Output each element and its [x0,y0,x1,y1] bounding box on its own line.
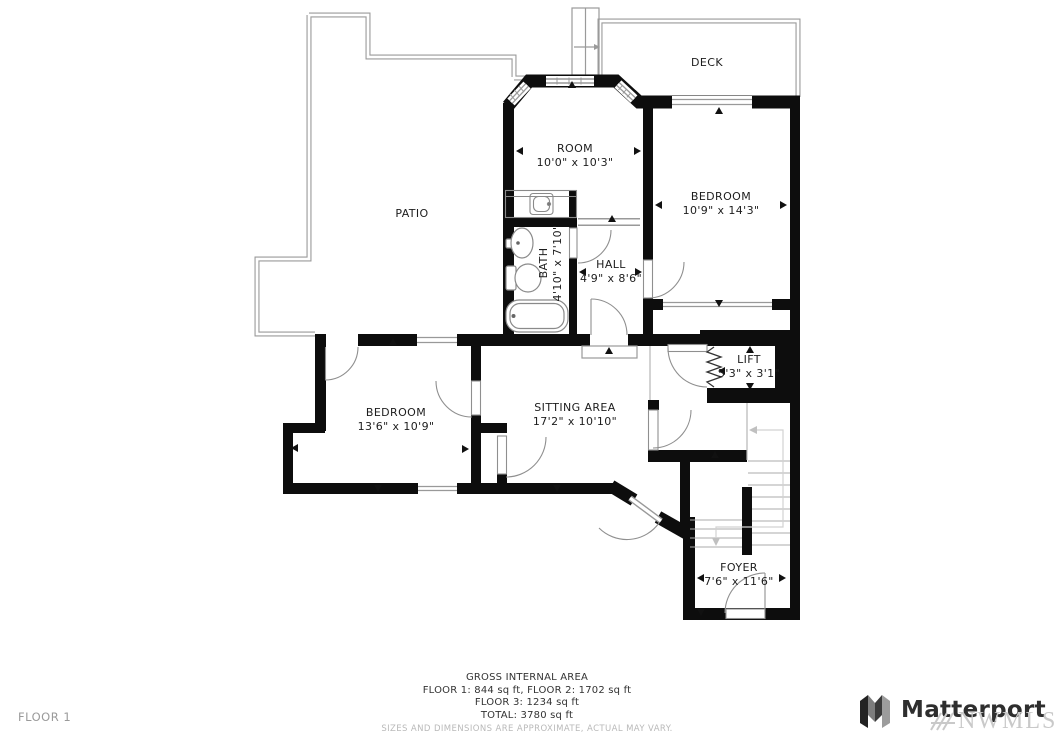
area-summary-title: GROSS INTERNAL AREA [0,672,1054,685]
room-dims: 10'0" x 10'3" [537,156,614,170]
room-label-bedroom-upper: BEDROOM 10'9" x 14'3" [683,190,760,218]
room-name: FOYER [704,561,773,575]
room-label-deck: DECK [691,56,723,70]
vanity-counter [506,191,577,218]
room-name: BEDROOM [683,190,760,204]
room-name: DECK [691,56,723,70]
room-label-hall: HALL 4'9" x 8'6" [580,258,642,286]
room-label-lift: LIFT 5'3" x 3'1" [718,353,780,381]
nwmls-watermark-icon [929,710,957,732]
room-name: BATH [537,225,551,302]
room-label-sitting-area: SITTING AREA 17'2" x 10'10" [533,401,617,429]
room-label-bedroom-lower: BEDROOM 13'6" x 10'9" [358,406,435,434]
nwmls-watermark-text: NWMLS [958,708,1054,734]
room-label-bath: BATH 4'10" x 7'10" [537,225,565,302]
room-name: HALL [580,258,642,272]
room-dims: 4'10" x 7'10" [551,225,565,302]
deck-steps [572,8,599,75]
room-dims: 10'9" x 14'3" [683,204,760,218]
toilet [506,264,541,292]
staircase [690,461,790,547]
room-dims: 5'3" x 3'1" [718,367,780,381]
room-name: PATIO [395,207,428,221]
room-name: SITTING AREA [533,401,617,415]
room-name: ROOM [537,142,614,156]
room-label-foyer: FOYER 7'6" x 11'6" [704,561,773,589]
nwmls-watermark: NWMLS [929,708,1054,734]
room-label-room: ROOM 10'0" x 10'3" [537,142,614,170]
floor-plan-page: DECK ROOM 10'0" x 10'3" BEDROOM 10'9" x … [0,0,1054,745]
room-name: LIFT [718,353,780,367]
floor-label: FLOOR 1 [18,710,71,724]
room-label-patio: PATIO [395,207,428,221]
room-dims: 17'2" x 10'10" [533,415,617,429]
room-dims: 7'6" x 11'6" [704,575,773,589]
room-name: BEDROOM [358,406,435,420]
bathtub [506,300,568,332]
room-dims: 13'6" x 10'9" [358,420,435,434]
matterport-logo-icon [858,694,894,734]
room-dims: 4'9" x 8'6" [580,272,642,286]
floor-plan-canvas [0,0,1054,745]
